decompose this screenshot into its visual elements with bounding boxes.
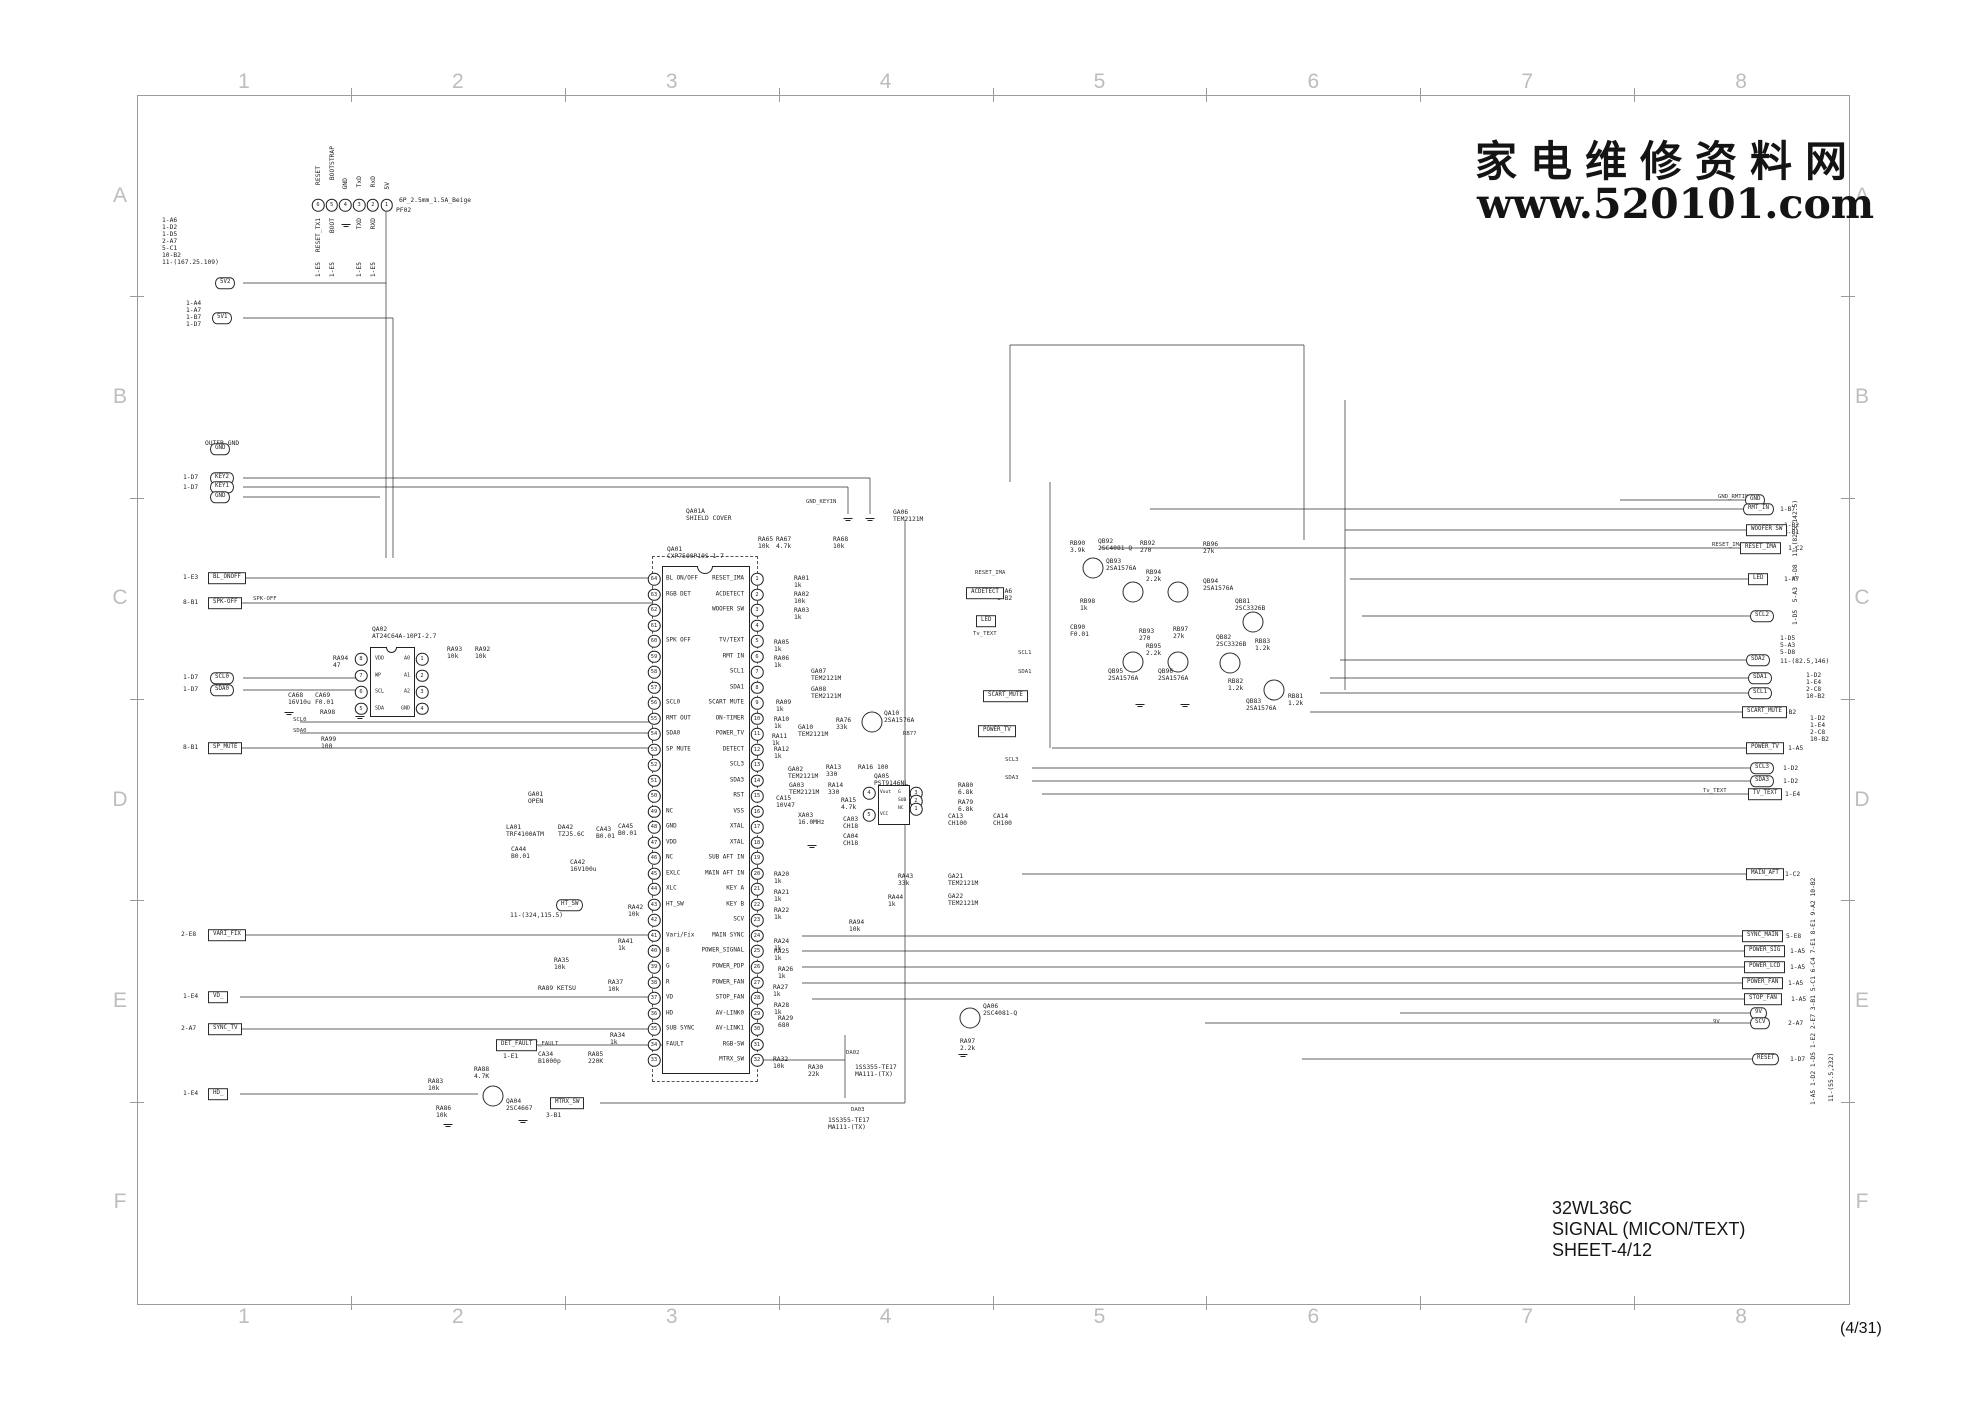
component-label: GA08 TEM2121M	[811, 686, 841, 700]
net-flag-vari_fix: VARI_FIX	[208, 929, 246, 941]
net-flag-5v1: 5V1	[212, 312, 232, 324]
component-label: 11-(55.5,232)	[1828, 1053, 1835, 1102]
component-label: GND_KEYIN	[806, 499, 836, 505]
grid-col-label: 5	[1094, 1305, 1106, 1329]
component-label: RA06 1k	[774, 655, 789, 669]
main-ic-pin-number: 27	[751, 976, 764, 989]
grid-row-label: D	[1854, 788, 1869, 812]
main-ic-pin-number: 23	[751, 914, 764, 927]
main-ic-pin-name: STOP_FAN	[668, 995, 744, 1002]
main-ic-pin-name: MAIN AFT IN	[668, 870, 744, 877]
component-label: CB90 F0.01	[1070, 624, 1089, 638]
component-label: RA41 1k	[618, 938, 633, 952]
component-label: 8-B1	[183, 744, 198, 751]
component-label: RA67 4.7k	[776, 536, 791, 550]
net-flag-hd_: HD_	[208, 1088, 228, 1100]
main-ic-pin-number: 30	[751, 1023, 764, 1036]
component-label: RA37 10k	[608, 979, 623, 993]
component-label: CA68 16V10u	[288, 692, 311, 706]
main-ic-pin-name: SCL1	[668, 669, 744, 676]
grid-tick	[779, 1296, 780, 1310]
component-label: GND_RMTIN	[1718, 494, 1748, 500]
main-ic-pin-number: 4	[751, 619, 764, 632]
grid-tick	[565, 1296, 566, 1310]
main-ic-pin-number: 55	[648, 712, 661, 725]
transistor-icon	[1168, 652, 1189, 673]
grid-tick	[1841, 296, 1855, 297]
connector-pin-number: 4	[339, 199, 352, 212]
main-ic-pin-number: 17	[751, 821, 764, 834]
component-label: RB95 2.2k	[1146, 643, 1161, 657]
main-ic-pin-number: 52	[648, 759, 661, 772]
grid-tick	[1634, 1296, 1635, 1310]
main-ic-pin-number: 9	[751, 697, 764, 710]
main-ic-pin-name: RMT IN	[668, 653, 744, 660]
transistor-icon	[1264, 680, 1285, 701]
component-label: CA45 B0.01	[618, 823, 637, 837]
component-label: RA30 22k	[808, 1064, 823, 1078]
component-label: 1-A5 1-D2 1-D5 1-E2 2-E7 3-B1 5-C1 6-C4 …	[1810, 878, 1817, 1105]
component-label: RB83 1.2k	[1255, 638, 1270, 652]
net-flag-scart_mute: SCART_MUTE	[1742, 706, 1787, 718]
main-ic-pin-name: XTAL	[668, 839, 744, 846]
main-ic-pin-number: 5	[751, 635, 764, 648]
grid-row-label: F	[114, 1190, 127, 1214]
eeprom-pin-name: A1	[388, 672, 410, 679]
main-ic-pin-number: 40	[648, 945, 661, 958]
grid-row-label: E	[113, 989, 127, 1013]
main-ic-pin-number: 20	[751, 868, 764, 881]
grid-row-label: B	[113, 385, 127, 409]
title-block: 32WL36C SIGNAL (MICON/TEXT) SHEET-4/12	[1552, 1198, 1745, 1261]
net-flag-spk-off: SPK-OFF	[208, 597, 242, 609]
component-label: 11-(324,115.5)	[510, 912, 563, 919]
connector-pin-name: RxD	[370, 176, 377, 187]
component-label: RA13 330	[826, 764, 841, 778]
main-ic-shield-label: QA01A SHIELD COVER	[686, 508, 732, 522]
component-label: DA42 TZJ5.6C	[558, 824, 585, 838]
component-label: RB97 27k	[1173, 626, 1188, 640]
component-label: RA11 1k	[772, 733, 787, 747]
grid-col-label: 2	[452, 70, 464, 94]
component-label: QA10 2SA1576A	[884, 710, 914, 724]
main-ic-pin-name: MAIN SYNC	[668, 932, 744, 939]
main-ic-pin-number: 43	[648, 899, 661, 912]
component-label: QB81 2SC3326B	[1235, 598, 1265, 612]
transistor-icon	[483, 1086, 504, 1107]
main-ic-pin-number: 59	[648, 650, 661, 663]
net-flag-scl3: SCL3	[1750, 762, 1774, 774]
main-ic-pin-number: 31	[751, 1038, 764, 1051]
component-label: 2-E8	[181, 931, 196, 938]
component-label: RA97 2.2k	[960, 1038, 975, 1052]
net-flag-mtrx_sw: MTRX_SW	[550, 1097, 584, 1109]
ground-icon	[1181, 704, 1190, 710]
eeprom-pin-number: 3	[416, 686, 429, 699]
component-label: RA94 47	[333, 655, 348, 669]
ground-icon	[519, 1120, 528, 1126]
grid-tick	[993, 1296, 994, 1310]
reset-ic-pin-name: SUB	[898, 798, 906, 803]
component-label: RA28 1k	[774, 1002, 789, 1016]
net-flag-scl2: SCL2	[1750, 610, 1774, 622]
grid-row-label: A	[113, 184, 127, 208]
component-label: RA25 1k	[774, 948, 789, 962]
component-label: 11-(82.5,146)	[1780, 658, 1829, 665]
ground-icon	[342, 224, 351, 230]
component-label: GA06 TEM2121M	[893, 509, 923, 523]
grid-row-label: B	[1855, 385, 1869, 409]
grid-row-label: D	[112, 788, 127, 812]
component-label: GA01 OPEN	[528, 791, 543, 805]
component-label: LA01 TRF4100ATM	[506, 824, 544, 838]
reset-ic-pin-name: NC	[898, 806, 904, 811]
net-flag-gnd: GND	[210, 443, 230, 455]
net-flag-5v2: 5V2	[215, 277, 235, 289]
main-ic-pin-number: 54	[648, 728, 661, 741]
main-ic-pin-number: 48	[648, 821, 661, 834]
component-label: CA34 B1000p	[538, 1051, 561, 1065]
grid-tick	[1634, 88, 1635, 102]
model-name: 32WL36C	[1552, 1198, 1745, 1219]
component-label: SCL1	[1018, 650, 1031, 656]
main-ic-pin-number: 22	[751, 899, 764, 912]
main-ic-pin-number: 58	[648, 666, 661, 679]
sheet-subtitle: SIGNAL (MICON/TEXT)	[1552, 1219, 1745, 1240]
component-label: RA32 10k	[773, 1056, 788, 1070]
component-label: 1-E1	[503, 1053, 518, 1060]
grid-row-label: C	[112, 586, 127, 610]
component-label: RA15 4.7k	[841, 797, 856, 811]
net-flag-sync_main: SYNC_MAIN	[1742, 930, 1783, 942]
sheet-number: SHEET-4/12	[1552, 1240, 1745, 1261]
eeprom-pin-number: 8	[355, 653, 368, 666]
net-flag-main_aft: MAIN_AFT	[1746, 868, 1784, 880]
component-label: RA02 10k	[794, 591, 809, 605]
net-flag-acdetect: ACDETECT	[966, 587, 1004, 599]
grid-row-label: C	[1854, 586, 1869, 610]
component-label: CA44 B0.01	[511, 846, 530, 860]
component-label: RB98 1k	[1080, 598, 1095, 612]
component-label: RA85 220K	[588, 1051, 603, 1065]
component-label: RB96 27k	[1203, 541, 1218, 555]
main-ic-pin-number: 63	[648, 588, 661, 601]
connector-pin-name: GND	[342, 178, 349, 189]
transistor-icon	[1123, 582, 1144, 603]
main-ic-pin-number: 26	[751, 961, 764, 974]
main-ic-pin-number: 32	[751, 1054, 764, 1067]
net-flag-sync_tv: SYNC_TV	[208, 1023, 242, 1035]
main-ic-pin-name: AV-LINK1	[668, 1026, 744, 1033]
net-flag-rmt_in: RMT_IN	[1743, 503, 1774, 515]
component-label: 1-D7	[183, 484, 198, 491]
grid-col-label: 4	[880, 1305, 892, 1329]
main-ic-pin-number: 42	[648, 914, 661, 927]
grid-col-label: 2	[452, 1305, 464, 1329]
main-ic-pin-number: 46	[648, 852, 661, 865]
component-label: CA04 CH18	[843, 833, 858, 847]
main-ic-pin-name: SCART MUTE	[668, 700, 744, 707]
component-label: 1-D5 5-A3 5-D8 11-(82.5,142.5)	[1792, 500, 1799, 625]
component-label: SPK-OFF	[253, 596, 277, 602]
grid-row-label: E	[1855, 989, 1869, 1013]
component-label: RA20 1k	[774, 871, 789, 885]
reset-ic-pin-number: 4	[863, 787, 876, 800]
component-label: RA98	[320, 709, 335, 716]
main-ic-refdes: QA01 CXP7500P10S-1-7	[667, 546, 724, 560]
component-label: RA09 1k	[776, 699, 791, 713]
component-label: DA02	[846, 1050, 859, 1056]
net-flag-scv: SCV	[1750, 1017, 1770, 1029]
main-ic-pin-number: 37	[648, 992, 661, 1005]
main-ic-pin-number: 7	[751, 666, 764, 679]
connector-refdes: PF02	[396, 207, 411, 214]
main-ic-pin-name: POWER_SIGNAL	[668, 948, 744, 955]
net-flag-power_sig: POWER_SIG	[1744, 945, 1785, 957]
grid-col-label: 7	[1521, 70, 1533, 94]
main-ic-pin-number: 1	[751, 573, 764, 586]
component-label: CA43 B0.01	[596, 826, 615, 840]
grid-tick	[1841, 699, 1855, 700]
component-label: RA12 1k	[774, 746, 789, 760]
ground-icon	[959, 1054, 968, 1060]
component-label: 1-E3	[183, 574, 198, 581]
main-ic-pin-number: 21	[751, 883, 764, 896]
main-ic-pin-name: ACDETECT	[668, 591, 744, 598]
net-flag-power_tv: POWER_TV	[978, 725, 1016, 737]
ground-icon	[285, 712, 294, 718]
component-label: RA03 1k	[794, 607, 809, 621]
grid-tick	[130, 498, 144, 499]
connector-net-flag: TXD	[356, 218, 363, 229]
component-label: RA94 10k	[849, 919, 864, 933]
component-label: RB81 1.2k	[1288, 693, 1303, 707]
component-label: RA21 1k	[774, 889, 789, 903]
main-ic-pin-number: 38	[648, 976, 661, 989]
transistor-icon	[1168, 582, 1189, 603]
component-label: QB82 2SC3326B	[1216, 634, 1246, 648]
grid-tick	[565, 88, 566, 102]
eeprom-pin-number: 6	[355, 686, 368, 699]
grid-col-label: 5	[1094, 70, 1106, 94]
main-ic-pin-number: 47	[648, 837, 661, 850]
grid-tick	[993, 88, 994, 102]
component-label: 1-D2 1-E4 2-C8 10-B2	[1806, 672, 1825, 700]
component-label: QB94 2SA1576A	[1203, 578, 1233, 592]
net-flag-scl0: SCL0	[210, 672, 234, 684]
component-label: QB93 2SA1576A	[1106, 558, 1136, 572]
component-label: 1-E4	[183, 1090, 198, 1097]
eeprom-refdes: QA02 AT24C64A-10PI-2.7	[372, 626, 436, 640]
component-label: 1SS355-TE17 MA111-(TX)	[855, 1064, 897, 1078]
component-label: RA01 1k	[794, 575, 809, 589]
component-label: QA04 2SC4667	[506, 1098, 533, 1112]
net-flag-led: LED	[976, 615, 996, 627]
grid-tick	[351, 1296, 352, 1310]
eeprom-pin-number: 2	[416, 669, 429, 682]
main-ic-pin-number: 51	[648, 775, 661, 788]
ground-icon	[866, 518, 875, 524]
main-ic-pin-number: 2	[751, 588, 764, 601]
main-ic-pin-number: 39	[648, 961, 661, 974]
main-ic-pin-name: SDA3	[668, 777, 744, 784]
component-label: 5-E8	[1786, 933, 1801, 940]
component-label: RA26 1k	[778, 966, 793, 980]
net-flag-sda0: SDA0	[210, 684, 234, 696]
main-ic-pin-number: 56	[648, 697, 661, 710]
component-label: RA14 330	[828, 782, 843, 796]
main-ic-pin-number: 10	[751, 712, 764, 725]
component-label: RA88 4.7K	[474, 1066, 489, 1080]
component-label: 1-A5	[1791, 996, 1806, 1003]
transistor-icon	[1123, 652, 1144, 673]
component-label: XA03 16.0MHz	[798, 812, 825, 826]
component-label: RB92 270	[1140, 540, 1155, 554]
component-label: SDA3	[1005, 775, 1018, 781]
grid-tick	[130, 1102, 144, 1103]
component-label: Tv_TEXT	[973, 631, 997, 637]
net-flag-woofer sw: WOOFER SW	[1746, 524, 1787, 536]
grid-col-label: 3	[666, 1305, 678, 1329]
main-ic-pin-number: 13	[751, 759, 764, 772]
net-flag-led: LED	[1748, 573, 1768, 585]
component-label: GA03 TEM2121M	[789, 782, 819, 796]
main-ic-pin-number: 44	[648, 883, 661, 896]
net-flag-tv_text: TV_TEXT	[1748, 788, 1782, 800]
main-ic-pin-name: ON-TIMER	[668, 715, 744, 722]
net-flag-ht_sw: HT_SW	[556, 899, 583, 911]
component-label: GA10 TEM2121M	[798, 724, 828, 738]
component-label: 1-D7	[183, 674, 198, 681]
component-label: 1-E4	[1785, 791, 1800, 798]
net-flag-power_fan: POWER_FAN	[1742, 977, 1783, 989]
main-ic-pin-number: 12	[751, 743, 764, 756]
transistor-icon	[1220, 653, 1241, 674]
component-label: 1-D5 5-A3 5-D8	[1780, 635, 1795, 656]
grid-row-label: F	[1856, 1190, 1869, 1214]
component-label: 1-D2	[1783, 778, 1798, 785]
eeprom-pin-number: 4	[416, 703, 429, 716]
main-ic-pin-number: 41	[648, 930, 661, 943]
main-ic-pin-number: 11	[751, 728, 764, 741]
grid-col-label: 8	[1735, 70, 1747, 94]
component-label: CA03 CH18	[843, 816, 858, 830]
grid-tick	[1841, 498, 1855, 499]
component-label: QB92 2SC4081-Q	[1098, 538, 1132, 552]
component-label: RA05 1k	[774, 639, 789, 653]
component-label: 1-D7	[183, 474, 198, 481]
main-ic-pin-name: KEY A	[668, 886, 744, 893]
component-label: CA15 10V47	[776, 795, 795, 809]
connector-pin-name: BOOTSTRAP	[329, 146, 336, 180]
component-label: CA13 CH100	[948, 813, 967, 827]
eeprom-pin-name: GND	[388, 705, 410, 712]
component-label: 1-E4	[183, 993, 198, 1000]
reset-ic-pin-number: 1	[910, 803, 923, 816]
net-flag-scart_mute: SCART_MUTE	[983, 690, 1028, 702]
main-ic-pin-number: 57	[648, 681, 661, 694]
main-ic-pin-number: 25	[751, 945, 764, 958]
main-ic-pin-name: RESET_IMA	[668, 576, 744, 583]
component-label: GA22 TEM2121M	[948, 893, 978, 907]
connector-sheet-ref: 1-E5	[315, 262, 322, 277]
component-label: QA06 2SC4081-Q	[983, 1003, 1017, 1017]
component-label: RB93 270	[1139, 628, 1154, 642]
component-label: 9V	[1713, 1019, 1720, 1025]
component-label: SCL0	[293, 717, 306, 723]
main-ic-pin-number: 8	[751, 681, 764, 694]
grid-col-label: 6	[1307, 70, 1319, 94]
main-ic-pin-name: WOOFER SW	[668, 607, 744, 614]
reset-ic-pin-name: G	[898, 790, 901, 795]
connector-pin-number: 3	[353, 199, 366, 212]
eeprom-pin-number: 1	[416, 653, 429, 666]
net-flag-det_fault: DET_FAULT	[496, 1039, 537, 1051]
component-label: SDA0	[293, 728, 306, 734]
main-ic-pin-name: SDA1	[668, 684, 744, 691]
main-ic-pin-number: 64	[648, 573, 661, 586]
component-label: RA93 10k	[447, 646, 462, 660]
connector-sheet-ref: 1-E5	[356, 262, 363, 277]
net-flag-power_tv: POWER_TV	[1746, 742, 1784, 754]
component-label: RB94 2.2k	[1146, 569, 1161, 583]
connector-sheet-ref: 1-E5	[329, 262, 336, 277]
transistor-icon	[862, 712, 883, 733]
component-label: RA44 1k	[888, 894, 903, 908]
component-label: RB77	[903, 731, 916, 737]
component-label: RA80 6.8k	[958, 782, 973, 796]
ground-icon	[808, 845, 817, 851]
component-label: 1-A6 1-D2 1-D5 2-A7 5-C1 10-B2 11-(167.2…	[162, 217, 219, 266]
component-label: 1-A4 1-A7 1-B7 1-D7	[186, 300, 201, 328]
transistor-icon	[1083, 558, 1104, 579]
component-label: RA79 6.8k	[958, 799, 973, 813]
grid-col-label: 6	[1307, 1305, 1319, 1329]
reset-ic-refdes: QA05 PST9146NL	[874, 773, 908, 787]
component-label: GA02 TEM2121M	[788, 766, 818, 780]
component-label: 3-B1	[546, 1112, 561, 1119]
main-ic-pin-number: 45	[648, 868, 661, 881]
connector-pin-number: 6	[312, 199, 325, 212]
connector-sheet-ref: 1-E5	[370, 262, 377, 277]
grid-tick	[779, 88, 780, 102]
component-label: RA42 10k	[628, 904, 643, 918]
component-label: GA21 TEM2121M	[948, 873, 978, 887]
connector-pin-number: 2	[367, 199, 380, 212]
main-ic-pin-number: 35	[648, 1023, 661, 1036]
main-ic-pin-number: 6	[751, 650, 764, 663]
component-label: RB82 1.2k	[1228, 678, 1243, 692]
grid-tick	[1841, 1102, 1855, 1103]
main-ic-pin-number: 61	[648, 619, 661, 632]
grid-col-label: 8	[1735, 1305, 1747, 1329]
eeprom-pin-number: 7	[355, 669, 368, 682]
component-label: RA76 33k	[836, 717, 851, 731]
main-ic-pin-number: 15	[751, 790, 764, 803]
main-ic-pin-name: TV/TEXT	[668, 638, 744, 645]
net-flag-power_lcd: POWER_LCD	[1744, 961, 1785, 973]
grid-tick	[1420, 1296, 1421, 1310]
main-ic-pin-number: 62	[648, 604, 661, 617]
component-label: 1-D2 1-E4 2-C8 10-B2	[1810, 715, 1829, 743]
net-flag-sp_mute: SP_MUTE	[208, 742, 242, 754]
component-label: RA65 10k	[758, 536, 773, 550]
component-label: RA10 1k	[774, 716, 789, 730]
connector-net-flag: RXD	[370, 218, 377, 229]
component-label: SCL3	[1005, 757, 1018, 763]
component-label: RA35 10k	[554, 957, 569, 971]
main-ic-pin-name: SCV	[668, 917, 744, 924]
